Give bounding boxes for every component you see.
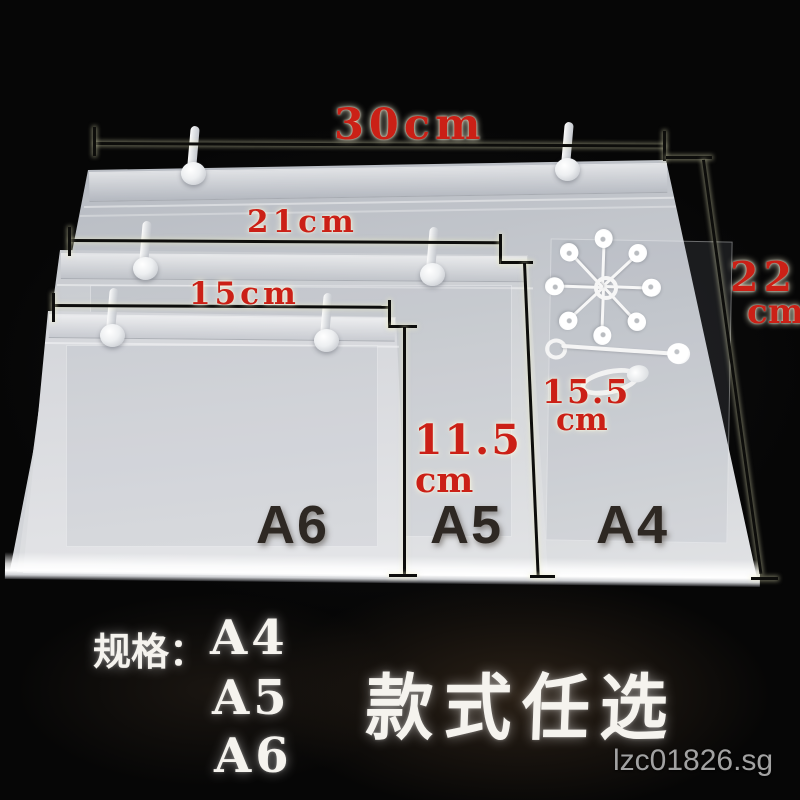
rivet <box>133 221 159 285</box>
measure-tick <box>530 575 555 578</box>
spoke-button <box>594 229 613 249</box>
spoke-button <box>642 278 662 297</box>
slogan-text: 款式任选 <box>364 649 680 754</box>
rivet-head <box>314 329 339 352</box>
measure-tick <box>52 293 55 322</box>
rivet <box>314 293 340 357</box>
dim-label-15cm: 15cm <box>189 276 300 312</box>
spec-size-a4: A4 <box>210 610 289 666</box>
fastener-hub <box>594 276 618 300</box>
spec-size-a5: A5 <box>212 670 291 726</box>
sheet-label-a5: A5 <box>430 494 503 556</box>
rivet <box>420 227 446 291</box>
measure-tick <box>751 577 778 580</box>
dim-label-15-5-unit: cm <box>556 402 608 438</box>
measure-tick <box>666 156 712 159</box>
sheet-label-a4: A4 <box>596 494 669 556</box>
product-photo: 30cm 21cm 15cm 22 cm 11.5 cm 15.5 cm A6 … <box>0 0 800 800</box>
pin-ring <box>544 338 567 360</box>
measure-tick <box>501 261 533 264</box>
rivet <box>181 126 207 190</box>
spec-label: 规格： <box>93 621 207 676</box>
rivet-head <box>555 158 580 181</box>
rivet-head <box>420 263 445 286</box>
measure-tick <box>68 227 71 256</box>
rivet-head <box>133 257 158 280</box>
dim-label-30cm: 30cm <box>334 100 486 150</box>
pin-button <box>666 342 690 365</box>
dim-label-11-5: 11.5 <box>414 416 522 464</box>
pin-shaft <box>561 344 671 356</box>
dim-label-22-unit: cm <box>747 292 800 332</box>
watermark-text: lzc01826.sg <box>613 744 773 778</box>
spoke-button <box>545 277 565 296</box>
a6-pocket <box>66 345 378 547</box>
measure-line-11-5cm <box>403 327 406 576</box>
rivet-head <box>100 324 125 347</box>
measure-tick <box>388 300 391 328</box>
measure-tick <box>389 574 417 577</box>
measure-tick <box>499 234 502 264</box>
measure-tick <box>93 127 96 156</box>
rivet <box>555 122 581 186</box>
sheet-label-a6: A6 <box>256 494 329 556</box>
dim-label-21cm: 21cm <box>247 204 358 240</box>
rivet-head <box>181 162 206 185</box>
spec-size-a6: A6 <box>214 728 293 784</box>
rivet <box>100 288 126 352</box>
